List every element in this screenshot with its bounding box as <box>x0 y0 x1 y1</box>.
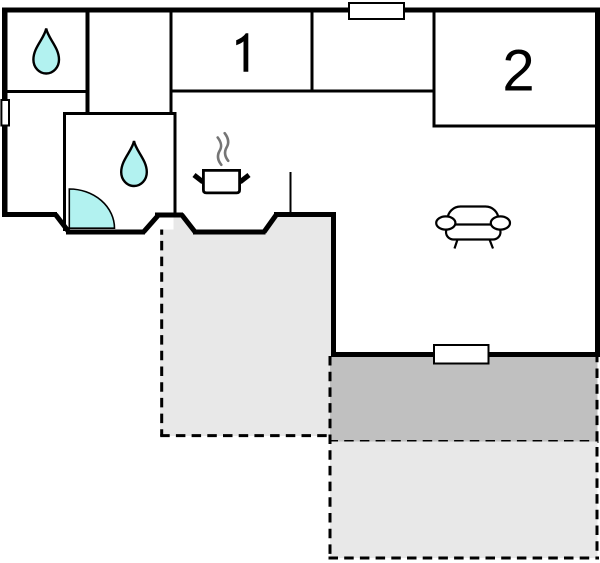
svg-text:2: 2 <box>502 39 534 104</box>
